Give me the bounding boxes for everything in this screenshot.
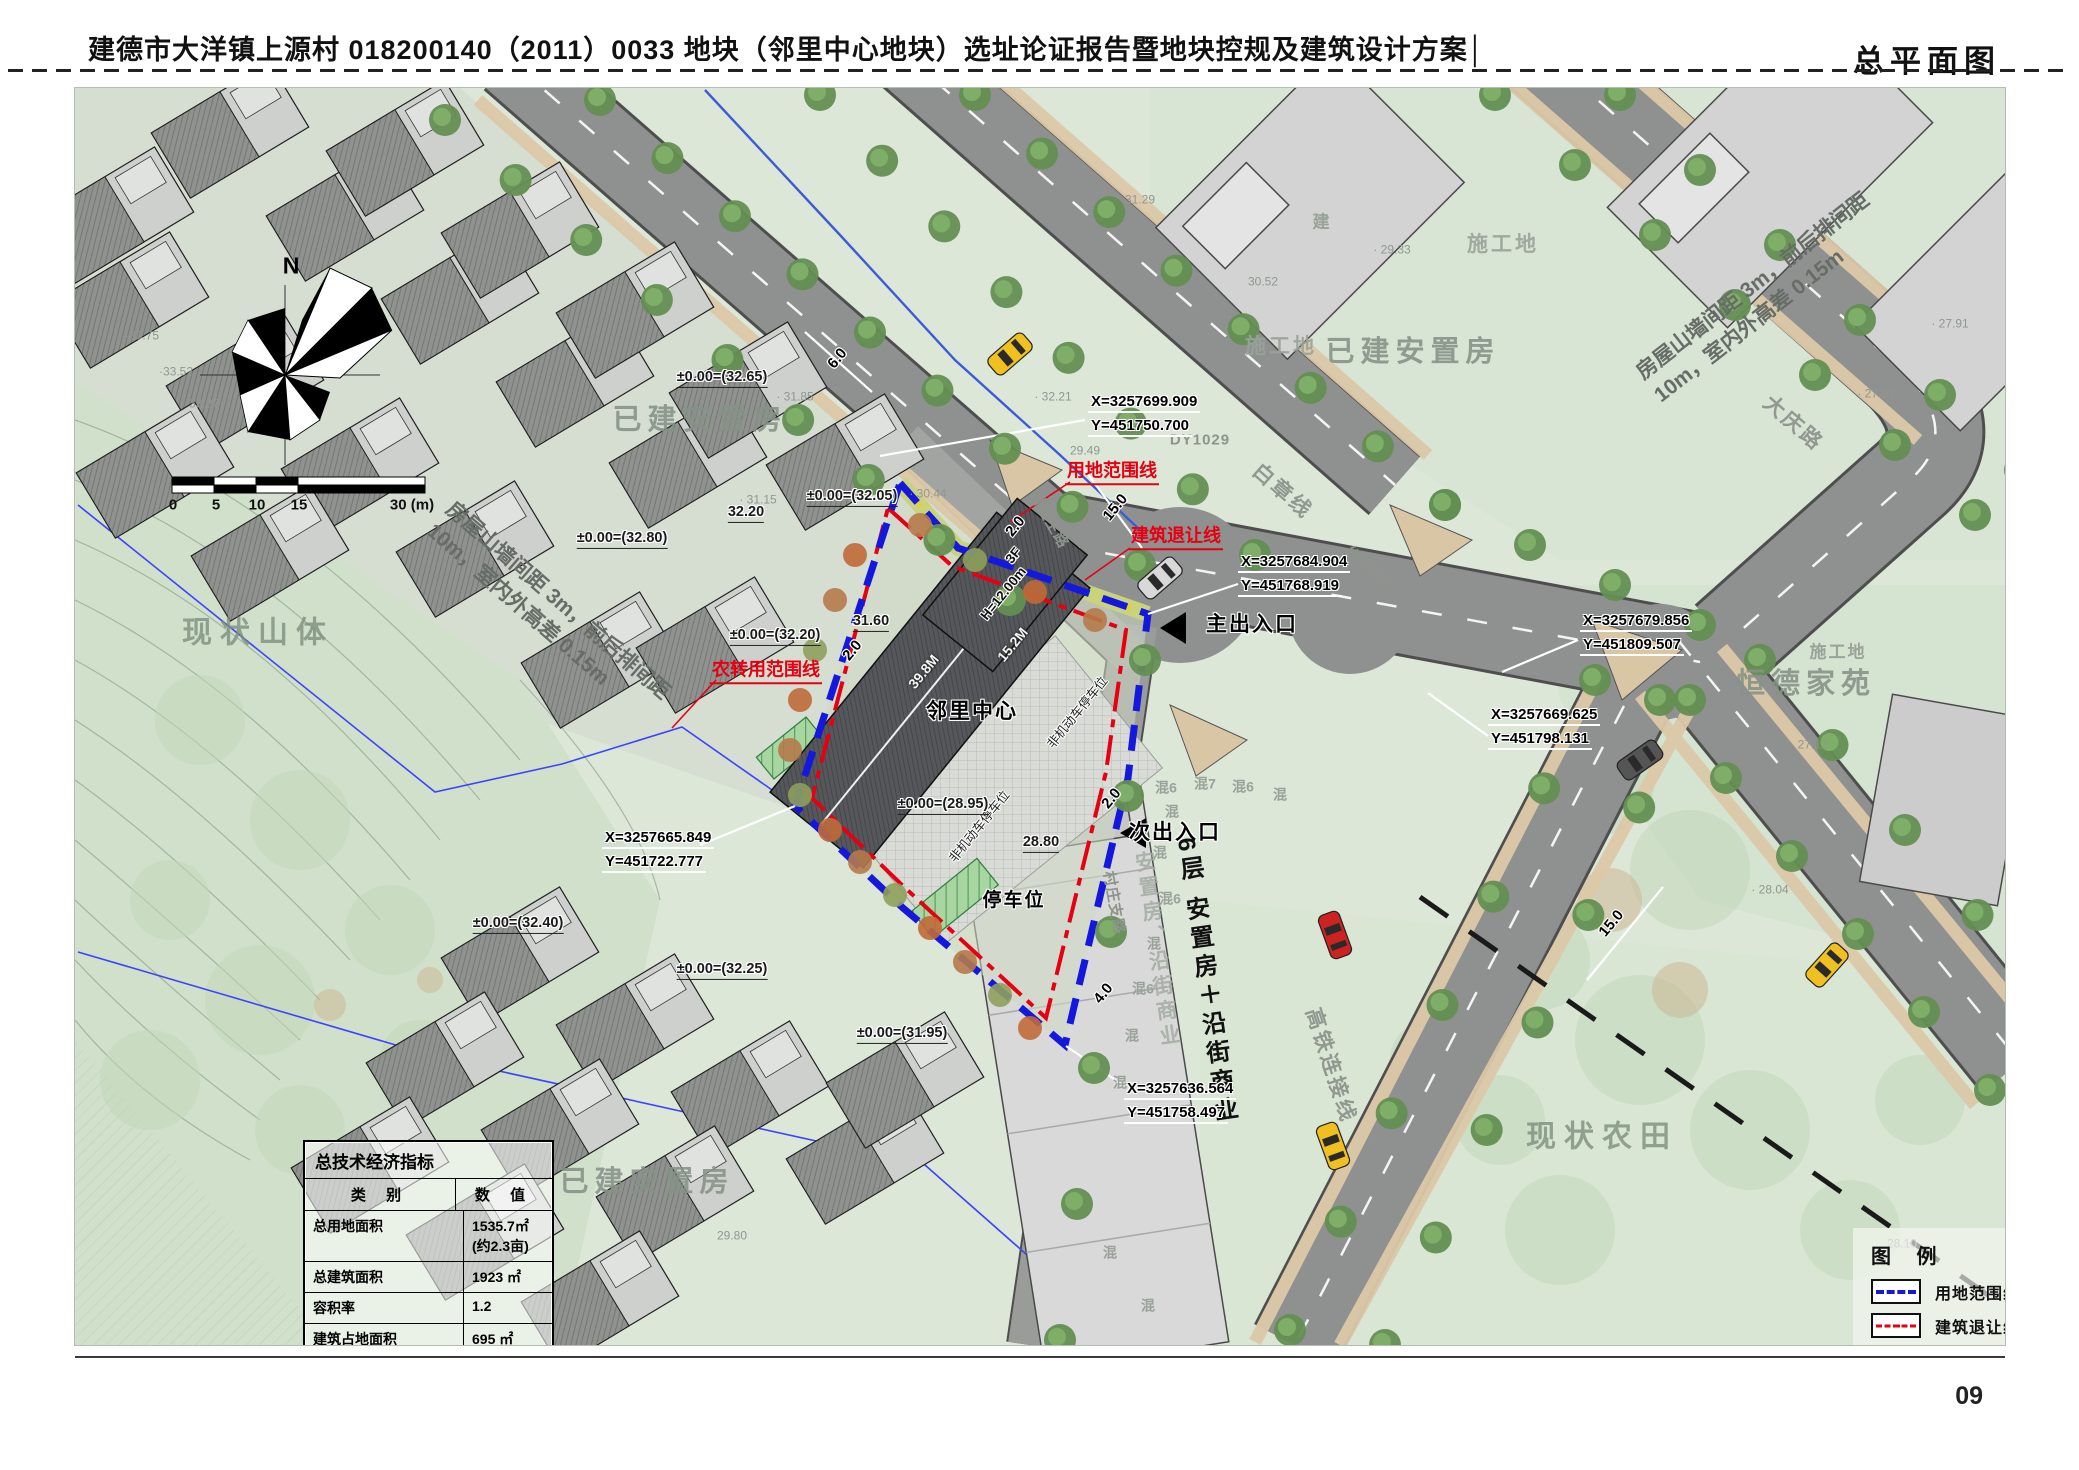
street-tree: [1908, 996, 1940, 1028]
street-tree: [1974, 1074, 2005, 1106]
shrub: [843, 543, 867, 567]
street-tree: [1514, 529, 1546, 561]
street-tree: [1764, 229, 1796, 261]
table-row: 总用地面积1535.7㎡ (约2.3亩): [305, 1211, 552, 1262]
street-tree: [1471, 1114, 1503, 1146]
shrub: [788, 688, 812, 712]
street-tree: [1420, 1222, 1452, 1254]
shrub: [1023, 580, 1047, 604]
street-tree: [1644, 684, 1676, 716]
document-title: 建德市大洋镇上源村 018200140（2011）0033 地块（邻里中心地块）…: [88, 28, 1486, 67]
street-tree: [787, 258, 819, 290]
street-tree: [1842, 918, 1874, 950]
street-tree: [1376, 1097, 1408, 1129]
shrub: [963, 548, 987, 572]
street-tree: [922, 375, 954, 407]
street-tree: [1719, 289, 1751, 321]
street-tree: [990, 276, 1022, 308]
shrub: [953, 950, 977, 974]
shrub: [788, 783, 812, 807]
street-tree: [712, 344, 744, 376]
street-tree: [1093, 196, 1125, 228]
street-tree: [429, 104, 461, 136]
site-plan-map: 已建安置房已建安置房已建安置房施工地施工地施工地恒德家苑现状山体现状农田建白章线…: [75, 88, 2005, 1345]
header-divider: [8, 69, 2071, 72]
row-value: 1923 ㎡: [464, 1262, 552, 1292]
street-tree: [989, 433, 1021, 465]
footer-rule: [75, 1356, 2005, 1358]
street-tree: [1477, 881, 1509, 913]
map-legend: 图 例 用地范围线建筑退让线规划建筑规划道路停车位: [1853, 1228, 2005, 1345]
street-tree: [1295, 372, 1327, 404]
street-tree: [1559, 149, 1591, 181]
street-tree: [1239, 539, 1271, 571]
shrub: [818, 818, 842, 842]
street-tree: [1325, 1206, 1357, 1238]
street-tree: [1078, 1052, 1110, 1084]
street-tree: [1879, 429, 1911, 461]
street-tree: [866, 145, 898, 177]
shrub: [778, 738, 802, 762]
row-label: 总用地面积: [305, 1211, 464, 1261]
legend-swatch-red-dashdot: [1871, 1313, 1921, 1338]
street-tree: [1061, 1188, 1093, 1220]
street-tree: [1844, 304, 1876, 336]
street-tree: [1889, 814, 1921, 846]
street-tree: [1057, 491, 1089, 523]
street-tree: [1228, 313, 1260, 345]
col-category: 类 别: [305, 1179, 456, 1210]
street-tree: [853, 464, 885, 496]
street-tree: [1522, 1007, 1554, 1039]
street-tree: [994, 584, 1026, 616]
street-tree: [719, 200, 751, 232]
table-row: 建筑占地面积695 ㎡: [305, 1324, 552, 1345]
street-tree: [1429, 489, 1461, 521]
street-tree: [1528, 772, 1560, 804]
shrub: [1083, 608, 1107, 632]
legend-label: 用地范围线: [1935, 1280, 2005, 1304]
street-tree: [652, 142, 684, 174]
street-tree: [1744, 644, 1776, 676]
shrub: [908, 513, 932, 537]
street-tree: [854, 317, 886, 349]
street-tree: [1160, 255, 1192, 287]
street-tree: [1177, 473, 1209, 505]
street-tree: [1962, 899, 1994, 931]
street-tree: [1674, 684, 1706, 716]
street-tree: [1623, 792, 1655, 824]
table-row: 总建筑面积1923 ㎡: [305, 1262, 552, 1293]
street-tree: [1095, 916, 1127, 948]
page-number: 09: [1955, 1382, 1983, 1411]
street-tree: [1053, 342, 1085, 374]
row-label: 容积率: [305, 1293, 464, 1323]
shrub: [803, 638, 827, 662]
street-tree: [1959, 499, 1991, 531]
street-tree: [1684, 609, 1716, 641]
street-tree: [1026, 138, 1058, 170]
legend-label: 建筑退让线: [1935, 1314, 2005, 1338]
sheet-title: 总平面图: [1853, 36, 2001, 81]
street-tree: [1639, 219, 1671, 251]
street-tree: [1115, 408, 1147, 440]
street-tree: [1579, 664, 1611, 696]
street-tree: [1427, 989, 1459, 1021]
col-value: 数 值: [456, 1179, 552, 1210]
shrub: [918, 916, 942, 940]
street-tree: [1684, 154, 1716, 186]
scale-bar: [172, 477, 425, 493]
street-tree: [1599, 569, 1631, 601]
street-tree: [1776, 840, 1808, 872]
street-tree: [1362, 430, 1394, 462]
legend-title: 图 例: [1871, 1240, 2005, 1269]
row-value: 1535.7㎡ (约2.3亩): [464, 1211, 552, 1261]
street-tree: [500, 164, 532, 196]
street-tree: [1274, 1314, 1306, 1345]
street-tree: [641, 284, 673, 316]
shrub: [848, 850, 872, 874]
row-label: 总建筑面积: [305, 1262, 464, 1292]
row-value: 1.2: [464, 1293, 552, 1323]
shrub: [1018, 1016, 1042, 1040]
legend-item-blue-dash: 用地范围线: [1871, 1279, 2005, 1304]
legend-item-red-dashdot: 建筑退让线: [1871, 1313, 2005, 1338]
shrub: [988, 983, 1012, 1007]
street-tree: [1129, 644, 1161, 676]
street-tree: [1817, 729, 1849, 761]
row-label: 建筑占地面积: [305, 1324, 464, 1345]
street-tree: [928, 210, 960, 242]
plan-document-page: 建德市大洋镇上源村 018200140（2011）0033 地块（邻里中心地块）…: [0, 0, 2079, 1470]
street-tree: [1924, 379, 1956, 411]
legend-swatch-blue-dash: [1871, 1279, 1921, 1304]
street-tree: [1710, 762, 1742, 794]
street-tree: [1572, 899, 1604, 931]
indicator-table: 总技术经济指标 类 别 数 值 总用地面积1535.7㎡ (约2.3亩)总建筑面…: [303, 1140, 554, 1345]
indicator-table-title: 总技术经济指标: [305, 1142, 552, 1179]
street-tree: [782, 404, 814, 436]
row-value: 695 ㎡: [464, 1324, 552, 1345]
street-tree: [1112, 780, 1144, 812]
table-row: 容积率1.2: [305, 1293, 552, 1324]
street-tree: [570, 224, 602, 256]
street-tree: [1799, 359, 1831, 391]
shrub: [823, 588, 847, 612]
shrub: [883, 883, 907, 907]
